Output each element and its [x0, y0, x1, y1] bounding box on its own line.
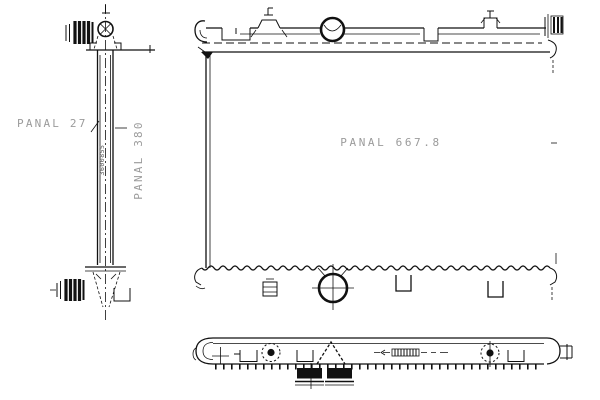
bottom-port-right [481, 341, 499, 367]
bottom-cross-mark [212, 347, 229, 364]
top-step-notch [424, 28, 438, 41]
top-left-hook [195, 21, 207, 42]
core-bottom-edge [202, 266, 550, 270]
radiator-technical-drawing: 3600855 PANAL 27 PANAL 380 [0, 0, 600, 400]
bottom-hatched-insert [374, 349, 448, 356]
core-left-edge [198, 47, 213, 268]
bottom-triangle-guide [317, 342, 345, 364]
height-dimension-label: PANAL 380 [132, 120, 145, 199]
side-lower-funnel [93, 272, 130, 307]
drain-plug [312, 264, 354, 310]
top-right-bracket [484, 11, 497, 28]
bottom-right-stub [560, 344, 572, 360]
core-bottom-left-end [195, 268, 205, 289]
bottom-bracket-2 [297, 350, 313, 362]
top-fitting [258, 8, 280, 28]
side-core-code-label: 3600855 [98, 145, 106, 176]
lower-left-fitting [263, 279, 277, 296]
side-inlet-connector-top [66, 21, 93, 44]
width-dimension-label: PANAL 667.8 [340, 136, 441, 149]
bottom-port-left [262, 344, 280, 362]
outlet-pipe-block-a [295, 368, 324, 385]
lower-bracket-a [396, 275, 411, 291]
filler-cap [321, 18, 344, 41]
lower-bracket-b [488, 281, 503, 297]
top-right-end [545, 14, 563, 74]
drawing-canvas: 3600855 PANAL 27 PANAL 380 [0, 0, 600, 400]
bottom-bracket-3 [508, 350, 524, 362]
front-view: PANAL 667.8 [195, 8, 563, 310]
outlet-pipe-block-b [325, 368, 354, 385]
side-view: 3600855 PANAL 27 PANAL 380 [17, 4, 155, 322]
top-tank [202, 8, 550, 52]
side-outlet-connector-bottom [50, 279, 84, 301]
bottom-bracket-1 [234, 350, 257, 362]
core-bottom-right-end [550, 253, 557, 301]
bottom-view [193, 338, 572, 389]
depth-dimension-label: PANAL 27 [17, 117, 88, 130]
